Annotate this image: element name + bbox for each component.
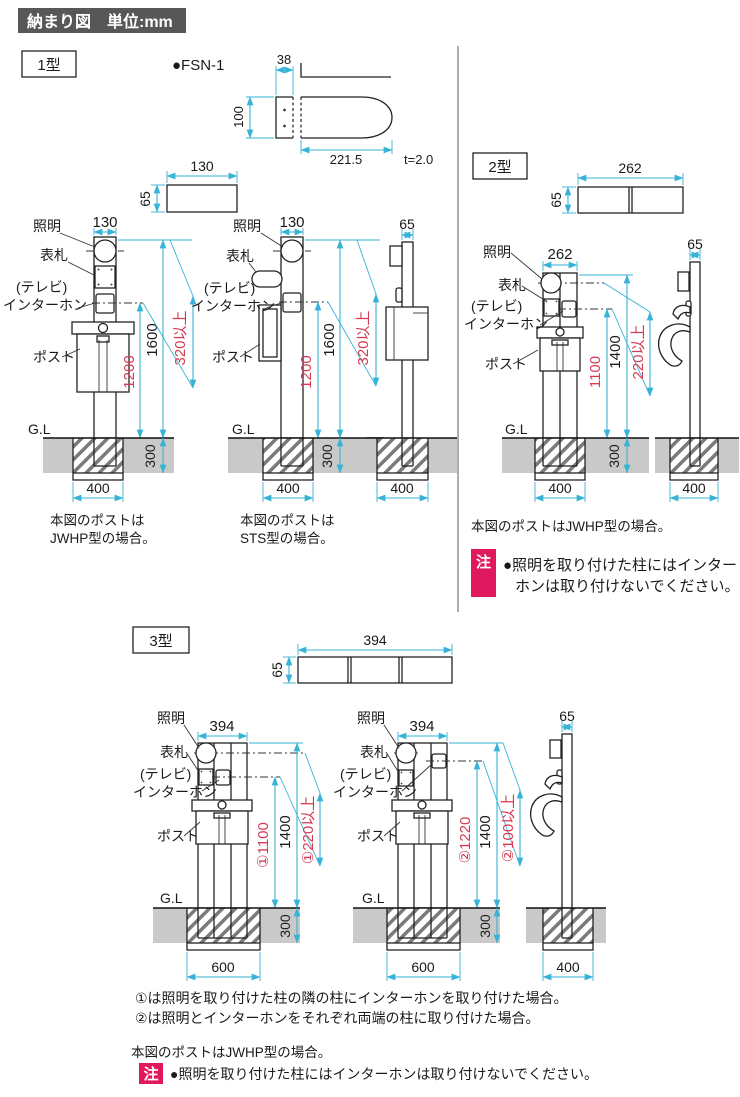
- note-badge-label: 注: [476, 553, 491, 571]
- type3-note2: ②は照明とインターホンをそれぞれ両端の柱に取り付けた場合。: [135, 1010, 540, 1026]
- ground-level-label: G.L: [160, 890, 183, 906]
- dim-plan-width: 130: [190, 158, 214, 174]
- ground-foundation: [366, 438, 457, 480]
- dim-width: 130: [92, 214, 117, 231]
- intercom-side: [396, 288, 402, 302]
- light-circle: [396, 743, 416, 763]
- light-circle: [196, 743, 216, 763]
- dim-footing-width: 400: [548, 480, 572, 496]
- intercom-panel: [283, 293, 301, 312]
- pole: [690, 262, 700, 438]
- dim-width: 394: [409, 718, 434, 735]
- dim-plan-width: 262: [618, 160, 642, 176]
- nameplate-bar: [252, 271, 282, 287]
- dim-mid-height: ②1220: [457, 817, 474, 864]
- dim-footing-width: 600: [211, 959, 235, 975]
- intercom-label: インターホン: [133, 784, 217, 800]
- type3-section: 3型 394 65 394 1400: [131, 627, 606, 1084]
- type3-side-view: 65 400: [526, 708, 606, 981]
- light-label: 照明: [233, 218, 261, 234]
- intercom-label: インターホン: [191, 298, 275, 314]
- type3-note1: ①は照明を取り付けた柱の隣の柱にインターホンを取り付けた場合。: [135, 990, 568, 1006]
- type1-plan-view: 130 65: [137, 158, 237, 212]
- dim-mid-height: 1200: [121, 355, 138, 388]
- caption-line2: STS型の場合。: [240, 531, 334, 546]
- note-badge-label: 注: [143, 1065, 158, 1083]
- nameplate-label: 表札: [498, 277, 526, 293]
- light-fixture-side: [678, 272, 689, 291]
- dim-total-height: 1600: [321, 323, 338, 356]
- nameplate-label: 表札: [360, 744, 388, 760]
- type1-label-box: 1型: [22, 51, 76, 77]
- dim-mid-height: 1100: [587, 356, 604, 388]
- ground-level-label: G.L: [28, 421, 51, 437]
- dim-bracket-width: 38: [277, 52, 291, 67]
- dim-total-height: 1400: [277, 815, 294, 848]
- ground-level-label: G.L: [232, 421, 255, 437]
- light-label: 照明: [483, 244, 511, 260]
- dim-embed-depth: 300: [142, 444, 158, 468]
- dim-mid-height: ①1100: [255, 822, 272, 868]
- type2-section: 2型 262 65 262 1400 1100: [464, 153, 740, 597]
- light-circle: [541, 273, 561, 293]
- type3-label: 3型: [149, 633, 172, 650]
- nameplate-label: 表札: [40, 247, 68, 263]
- dim-embed-depth: 300: [477, 914, 493, 938]
- type2-caption: 本図のポストはJWHP型の場合。: [471, 519, 671, 534]
- type3-label-box: 3型: [133, 627, 189, 653]
- dim-width: 130: [279, 214, 304, 231]
- screw-hole-icon: [283, 125, 286, 128]
- dim-embed-depth: 300: [277, 914, 293, 938]
- dim-footing-width: 400: [682, 480, 706, 496]
- intercom-label-tv: (テレビ): [204, 280, 255, 296]
- type2-label-box: 2型: [473, 153, 527, 179]
- intercom-handset: [659, 324, 690, 366]
- installation-diagram-page: 納まり図 単位:mm 1型 ●FSN-1 38 100 221.5 t=2.0 …: [0, 0, 740, 1097]
- light-label: 照明: [357, 710, 385, 726]
- ground-foundation: [655, 438, 739, 480]
- intercom-label-tv: (テレビ): [471, 298, 522, 314]
- caption-line2: JWHP型の場合。: [50, 531, 156, 546]
- post-label: ポスト: [357, 828, 399, 844]
- note-text: ●照明を取り付けた柱にはインターホンは取り付けないでください。: [170, 1066, 598, 1082]
- intercom-label-tv: (テレビ): [140, 766, 191, 782]
- intercom-label: インターホン: [464, 316, 548, 332]
- light-circle: [94, 240, 116, 262]
- ground-level-label: G.L: [505, 421, 528, 437]
- dim-footing-width: 600: [411, 959, 435, 975]
- dim-width: 65: [687, 236, 703, 252]
- dim-thickness: t=2.0: [404, 152, 433, 167]
- dim-min-clearance: 320以上: [172, 310, 189, 365]
- dim-width: 65: [559, 708, 575, 724]
- dim-min-clearance: ①220以上: [300, 796, 317, 864]
- dim-footing-width: 400: [86, 480, 110, 496]
- product-code: ●FSN-1: [172, 57, 224, 74]
- type2-note: 注 ●照明を取り付けた柱にはインター ホンは取り付けないでください。: [471, 549, 740, 597]
- type2-plan-view: 262 65: [548, 160, 683, 213]
- dim-width: 262: [547, 246, 572, 263]
- type1-front-jwhp: 130 1600 1200 320以上 300 400 G.L 照明 表札: [3, 214, 193, 546]
- type2-label: 2型: [488, 159, 511, 176]
- dim-embed-depth: 300: [319, 444, 335, 468]
- dim-width: 394: [209, 718, 234, 735]
- dim-plan-depth: 65: [548, 192, 564, 208]
- intercom-label: インターホン: [333, 784, 417, 800]
- page-title: 納まり図 単位:mm: [27, 12, 173, 31]
- dim-min-clearance: ②100以上: [500, 794, 517, 862]
- post-label: ポスト: [485, 356, 527, 372]
- type1-label: 1型: [37, 57, 60, 74]
- ground-level-label: G.L: [362, 890, 385, 906]
- intercom-panel: [216, 770, 230, 785]
- ground-foundation: [228, 438, 384, 480]
- intercom-handset: [531, 794, 562, 836]
- type1-side-view: 65 400: [366, 216, 457, 502]
- post-label: ポスト: [33, 349, 75, 365]
- pole: [281, 237, 303, 438]
- bracket-detail-drawing: 38 100 221.5 t=2.0: [231, 52, 433, 167]
- light-circle: [281, 240, 303, 262]
- type1-front-sts: 130 1600 1200 320以上 300 400 G.L 照明 表札 (テ…: [191, 214, 384, 546]
- dim-plan-width: 394: [363, 632, 387, 648]
- type3-caption: 本図のポストはJWHP型の場合。: [131, 1045, 331, 1060]
- light-fixture-side: [550, 740, 561, 758]
- light-label: 照明: [33, 218, 61, 234]
- dim-bracket-length: 221.5: [330, 152, 363, 167]
- intercom-label-tv: (テレビ): [16, 279, 67, 295]
- post-label: ポスト: [212, 349, 254, 365]
- post-box-jwhp: [392, 800, 452, 844]
- type3-front-config2: 394 1400 ②1220 ②100以上 300 600 G.L 照明 表札 …: [333, 710, 520, 981]
- type3-note-warning: 注 ●照明を取り付けた柱にはインターホンは取り付けないでください。: [139, 1063, 598, 1084]
- note-text-line1: ●照明を取り付けた柱にはインター: [503, 557, 737, 574]
- post-box-jwhp: [537, 327, 583, 371]
- type1-section: 1型 ●FSN-1 38 100 221.5 t=2.0 130 65: [3, 51, 457, 546]
- caption-line1: 本図のポストは: [240, 513, 335, 528]
- dim-plan-depth: 65: [137, 191, 153, 207]
- dim-embed-depth: 300: [606, 444, 622, 468]
- pole: [562, 734, 572, 908]
- intercom-panel: [96, 294, 114, 313]
- note-text-line2: ホンは取り付けないでください。: [515, 578, 740, 595]
- nameplate-label: 表札: [226, 248, 254, 264]
- light-label: 照明: [157, 710, 185, 726]
- dim-footing-width: 400: [556, 959, 580, 975]
- dim-mid-height: 1200: [298, 355, 315, 388]
- ground-foundation: [526, 908, 606, 950]
- intercom-label: インターホン: [3, 297, 87, 313]
- dim-footing-width: 400: [276, 480, 300, 496]
- type3-front-config1: 394 1400 ①1100 ①220以上 300 600 G.L 照明 表札 …: [133, 710, 320, 981]
- type3-plan-view: 394 65: [269, 632, 452, 683]
- dim-footing-width: 400: [390, 480, 414, 496]
- dim-min-clearance: 320以上: [355, 310, 372, 365]
- type2-side-view: 65 400: [655, 236, 739, 502]
- post-box-side: [386, 307, 428, 360]
- intercom-handset-arm: [673, 305, 690, 319]
- intercom-label-tv: (テレビ): [340, 766, 391, 782]
- dim-plan-depth: 65: [269, 662, 285, 678]
- caption-line1: 本図のポストは: [50, 513, 145, 528]
- dim-total-height: 1400: [477, 815, 494, 848]
- dim-total-height: 1600: [144, 323, 161, 356]
- diagram-canvas: 納まり図 単位:mm 1型 ●FSN-1 38 100 221.5 t=2.0 …: [0, 0, 740, 1097]
- dim-total-height: 1400: [607, 335, 624, 368]
- dim-bracket-height: 100: [231, 106, 246, 128]
- intercom-handset-arm: [545, 775, 562, 789]
- post-label: ポスト: [157, 828, 199, 844]
- type2-front: 262 1400 1100 220以上 300 400 G.L 照明 表札 (テ…: [464, 244, 650, 502]
- dim-min-clearance: 220以上: [630, 324, 647, 379]
- screw-hole-icon: [283, 109, 286, 112]
- dim-width: 65: [399, 216, 415, 232]
- post-box-jwhp: [192, 800, 252, 844]
- nameplate-label: 表札: [160, 744, 188, 760]
- header-bar: 納まり図 単位:mm: [18, 8, 186, 33]
- light-fixture-side: [390, 246, 402, 266]
